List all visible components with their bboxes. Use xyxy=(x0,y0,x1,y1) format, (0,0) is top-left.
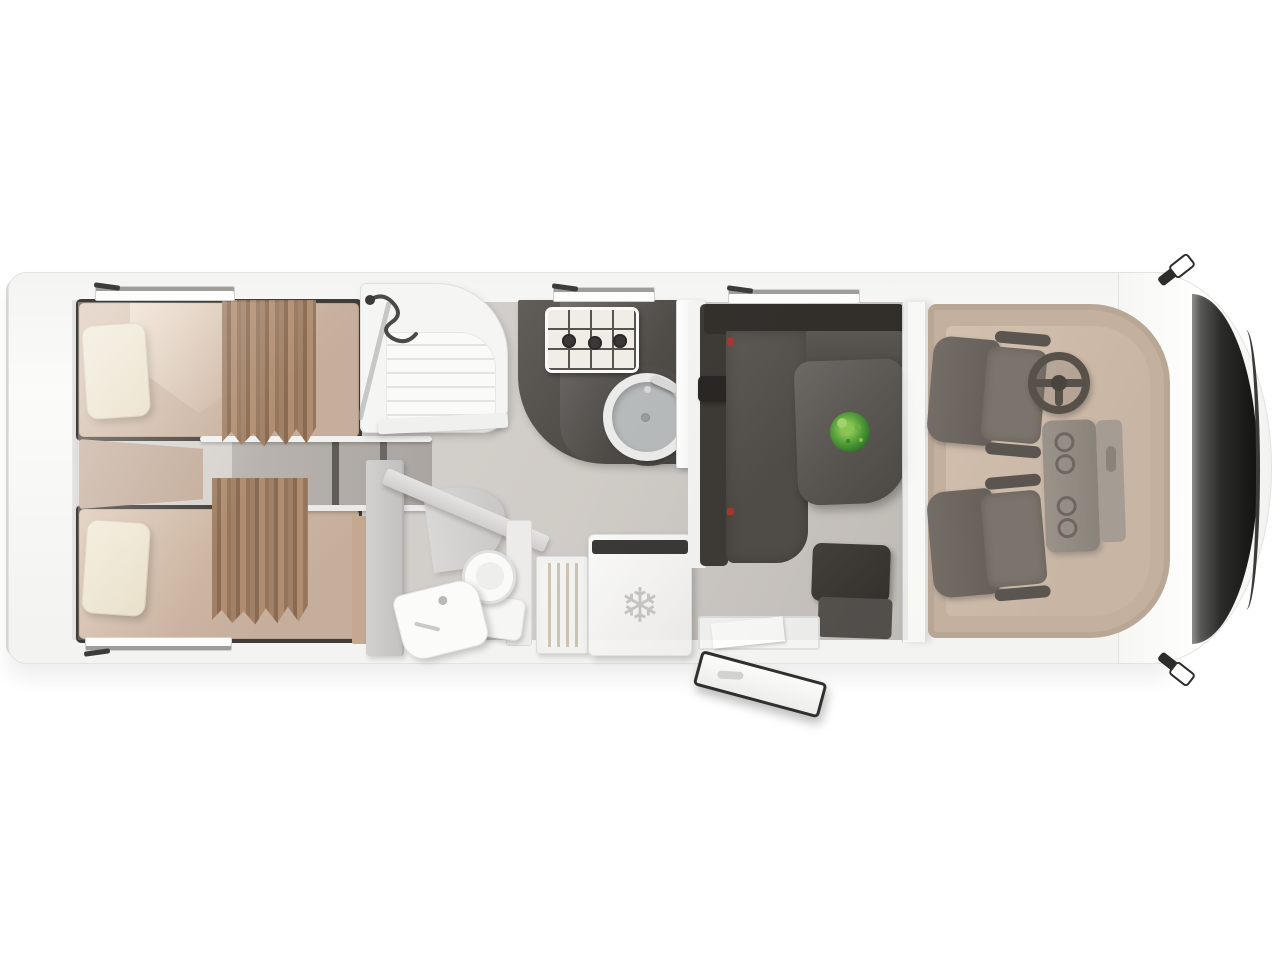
cup-holder xyxy=(1055,454,1076,475)
pillow-top xyxy=(81,322,151,420)
hob-burner xyxy=(562,334,576,348)
seat-armrest xyxy=(994,585,1051,602)
rear-bedroom-bottom-window xyxy=(85,637,232,651)
seatbelt-anchor xyxy=(727,508,734,515)
dashboard xyxy=(1096,420,1126,543)
cup-holder xyxy=(1056,496,1077,517)
floorplan-canvas: ❄ xyxy=(0,0,1280,960)
windshield-trim xyxy=(1246,330,1260,610)
passenger-seat xyxy=(925,473,1054,609)
door-handle xyxy=(717,671,743,680)
seat-cushion xyxy=(980,489,1048,588)
toilet-seat xyxy=(476,562,504,590)
privacy-curtain-bottom xyxy=(212,478,308,626)
pillow-bottom xyxy=(81,519,151,617)
hob-burner xyxy=(588,336,602,350)
privacy-curtain-top xyxy=(222,300,316,448)
passenger-mirror xyxy=(1150,644,1204,692)
cab-divider-wall xyxy=(902,302,926,642)
gas-hob xyxy=(545,307,639,373)
center-cushion xyxy=(79,439,203,509)
center-console xyxy=(1042,419,1101,553)
pantry-shelves xyxy=(536,556,588,654)
seatbelt-anchor xyxy=(727,338,734,345)
steering-hub xyxy=(1051,375,1067,391)
cup-holder xyxy=(1054,432,1075,453)
step-riser xyxy=(332,440,339,506)
snowflake-icon: ❄ xyxy=(588,556,692,656)
cup-holder xyxy=(1057,518,1078,539)
shower-hose-icon xyxy=(362,286,436,358)
sink-overflow xyxy=(644,386,651,393)
sofa-backrest-top xyxy=(704,304,904,334)
washbasin-tap xyxy=(437,595,448,606)
seat-armrest xyxy=(985,442,1042,459)
bed-edge-rail xyxy=(200,436,432,442)
refrigerator-hinge xyxy=(592,540,688,554)
dinette-window xyxy=(728,289,860,304)
washbasin-handle xyxy=(414,621,440,631)
side-seat-cushion xyxy=(817,597,892,640)
kitchen-window xyxy=(553,287,655,302)
sofa-backrest-left xyxy=(700,304,728,566)
sink-drain xyxy=(641,413,650,422)
rear-bedroom-top-window xyxy=(95,286,235,301)
hob-burner xyxy=(613,334,627,348)
dashboard-vent xyxy=(1106,446,1116,472)
driver-mirror xyxy=(1150,248,1204,296)
side-seat-backrest xyxy=(811,543,891,604)
pantry-slots xyxy=(542,563,582,647)
table-plant xyxy=(830,412,870,452)
